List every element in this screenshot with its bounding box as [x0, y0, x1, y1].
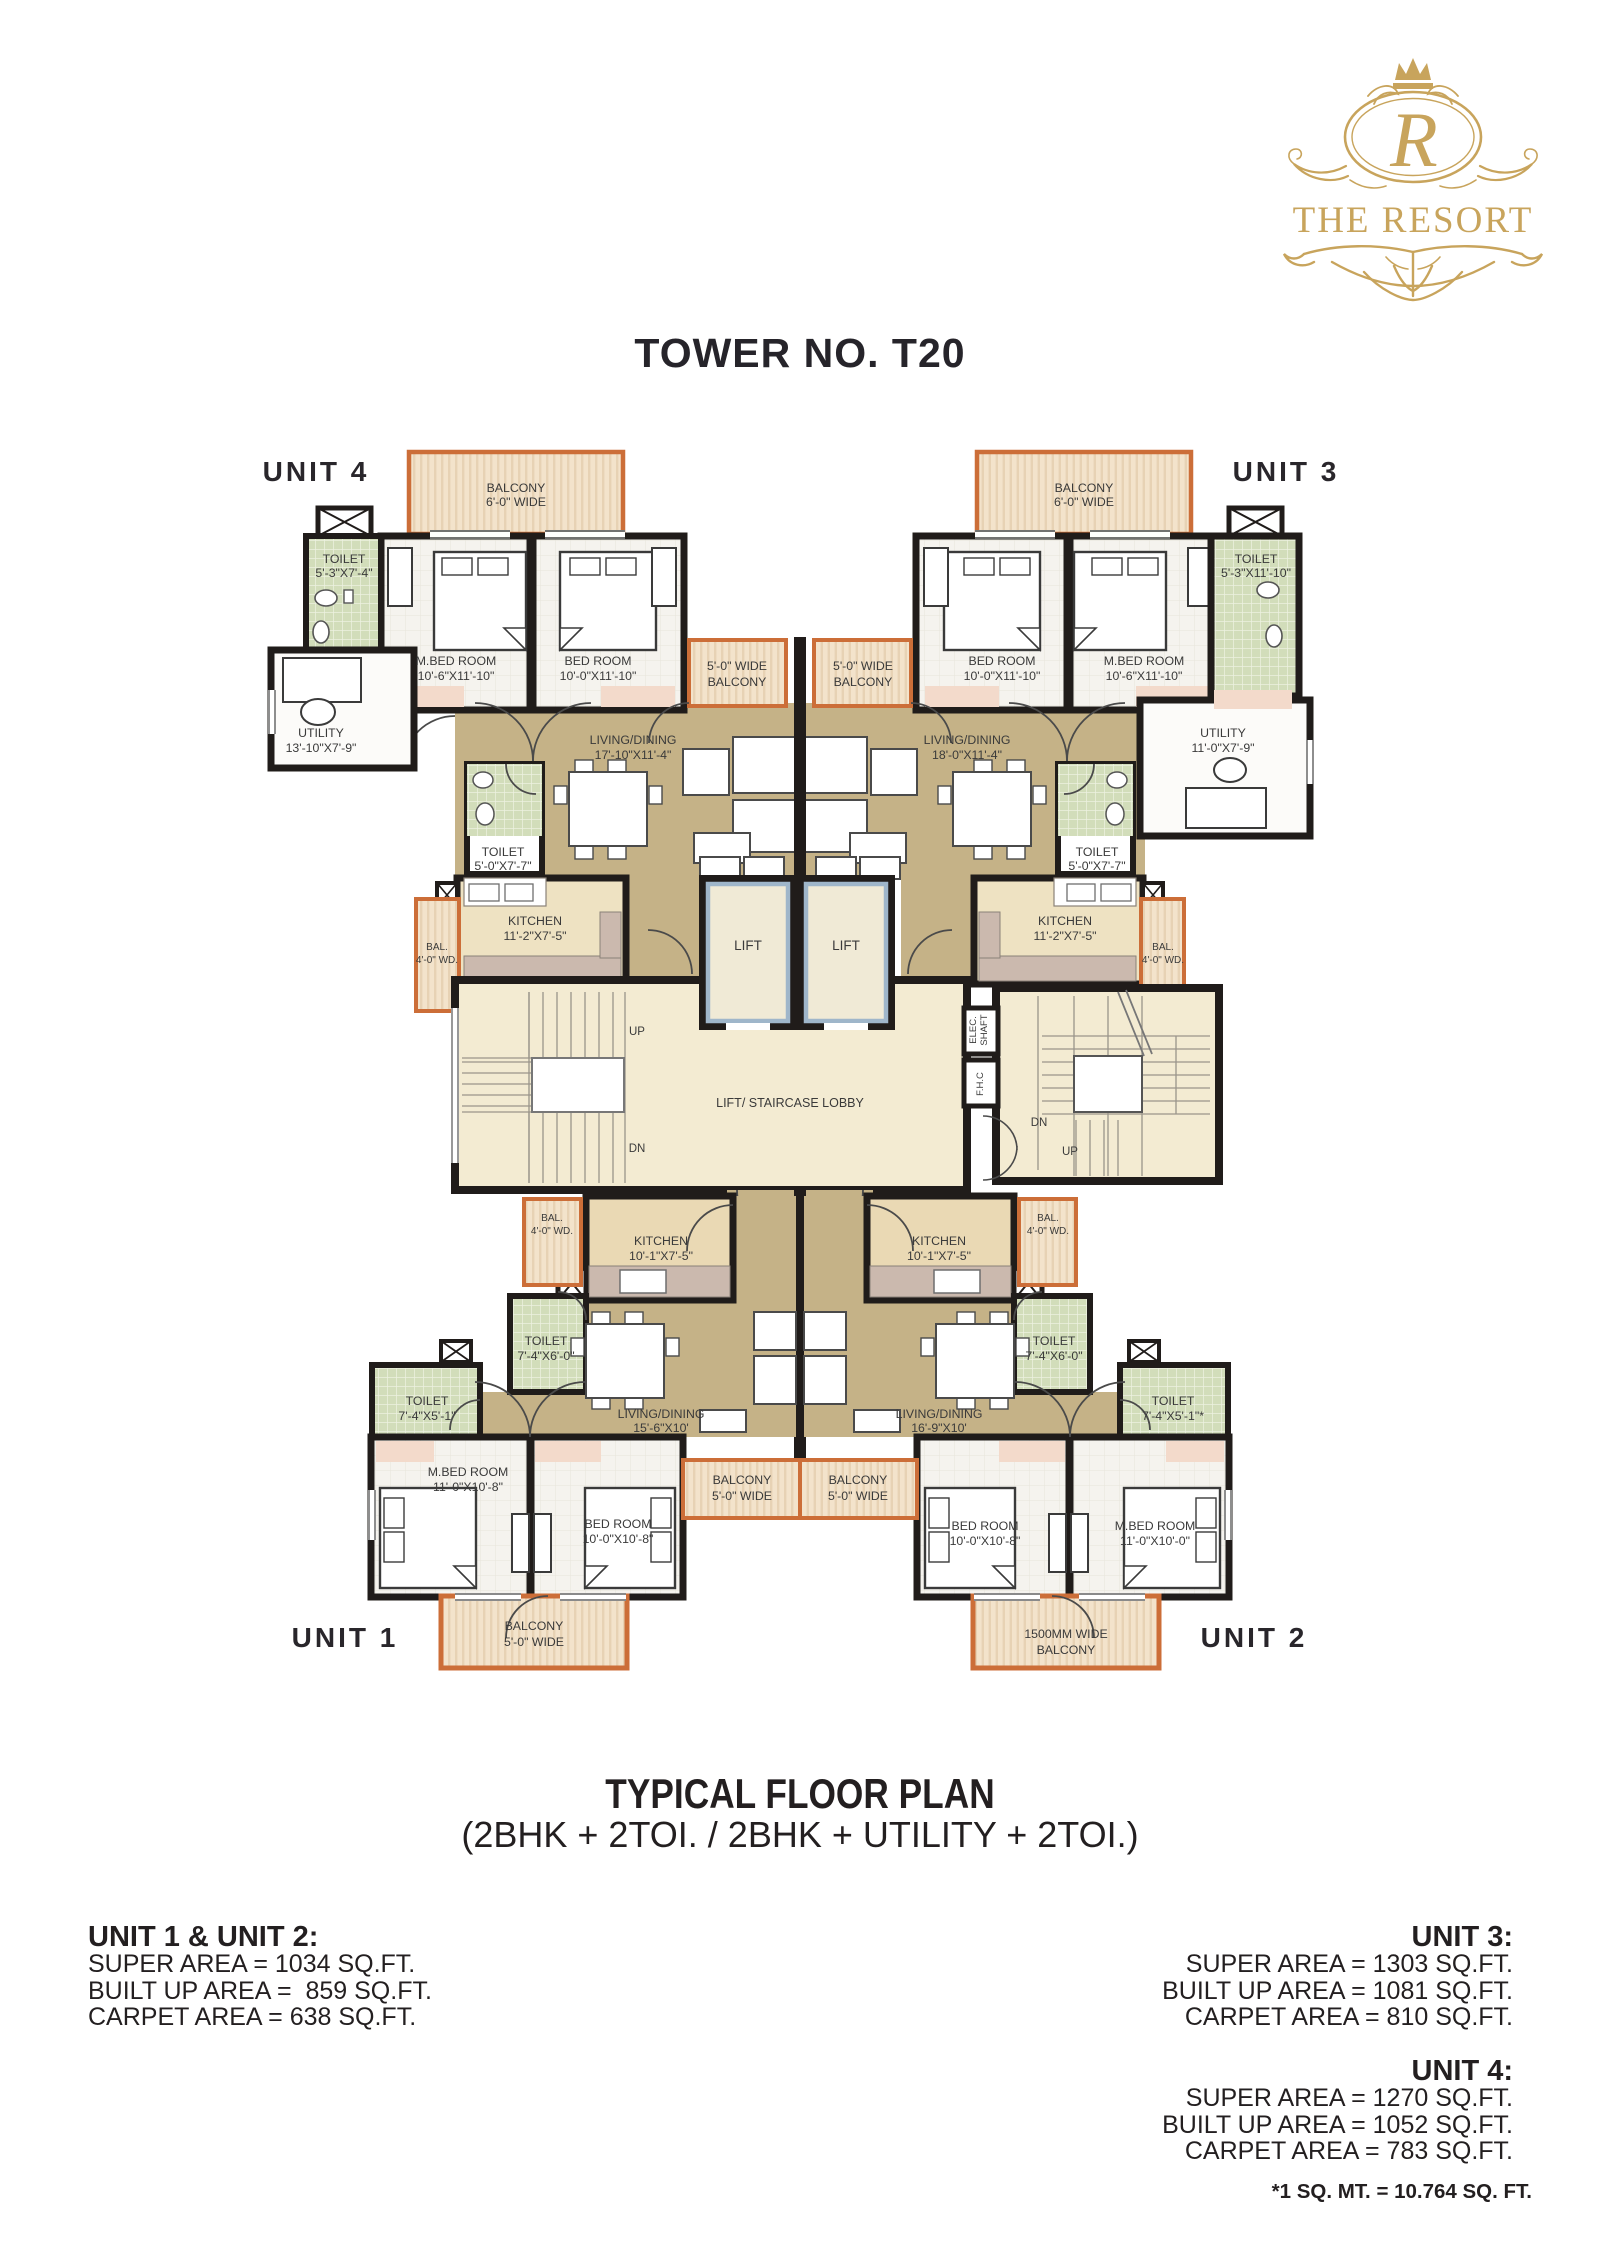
- svg-text:DN: DN: [629, 1143, 646, 1155]
- svg-text:M.BED ROOM: M.BED ROOM: [1115, 1519, 1196, 1533]
- svg-text:5'-0"X7'-7": 5'-0"X7'-7": [474, 859, 531, 873]
- svg-text:11'-2"X7'-5": 11'-2"X7'-5": [1033, 929, 1096, 943]
- svg-text:BED ROOM: BED ROOM: [969, 654, 1036, 668]
- svg-text:LIFT: LIFT: [832, 938, 860, 953]
- svg-text:TOILET: TOILET: [1033, 1334, 1076, 1348]
- svg-text:TOILET: TOILET: [482, 845, 525, 859]
- svg-text:UNIT 1: UNIT 1: [292, 1622, 399, 1653]
- svg-text:7'-4"X6'-0": 7'-4"X6'-0": [517, 1349, 574, 1363]
- svg-text:ELEC.: ELEC.: [968, 1016, 979, 1043]
- svg-text:M.BED ROOM: M.BED ROOM: [416, 654, 497, 668]
- svg-text:10'-6"X11'-10": 10'-6"X11'-10": [1106, 669, 1183, 683]
- svg-text:SHAFT: SHAFT: [979, 1014, 990, 1045]
- svg-text:11'-0"X7'-9": 11'-0"X7'-9": [1191, 741, 1254, 755]
- svg-text:BAL.: BAL.: [541, 1213, 563, 1224]
- svg-text:17'-10"X11'-4": 17'-10"X11'-4": [595, 748, 672, 762]
- svg-text:LIVING/DINING: LIVING/DINING: [590, 733, 677, 747]
- svg-text:UNIT 4: UNIT 4: [263, 456, 370, 487]
- svg-text:F.H.C: F.H.C: [975, 1072, 986, 1096]
- svg-text:6'-0" WIDE: 6'-0" WIDE: [1054, 495, 1114, 509]
- svg-text:16'-9"X10': 16'-9"X10': [911, 1421, 967, 1435]
- svg-text:TOILET: TOILET: [1235, 552, 1278, 566]
- svg-text:UP: UP: [629, 1026, 645, 1038]
- svg-text:BALCONY: BALCONY: [708, 675, 767, 689]
- svg-text:M.BED ROOM: M.BED ROOM: [1104, 654, 1185, 668]
- svg-text:7'-4"X6'-0": 7'-4"X6'-0": [1025, 1349, 1082, 1363]
- svg-text:DN: DN: [1031, 1117, 1048, 1129]
- svg-text:KITCHEN: KITCHEN: [1038, 914, 1092, 928]
- svg-text:M.BED ROOM: M.BED ROOM: [428, 1465, 509, 1479]
- svg-text:10'-1"X7'-5": 10'-1"X7'-5": [629, 1249, 693, 1263]
- svg-text:TOILET: TOILET: [323, 552, 366, 566]
- svg-text:7'-4"X5'-1": 7'-4"X5'-1": [398, 1409, 455, 1423]
- svg-text:BED ROOM: BED ROOM: [585, 1517, 652, 1531]
- svg-text:LIVING/DINING: LIVING/DINING: [896, 1407, 983, 1421]
- svg-text:5'-0" WIDE: 5'-0" WIDE: [712, 1489, 772, 1503]
- svg-text:BAL.: BAL.: [426, 942, 448, 953]
- svg-text:4'-0" WD.: 4'-0" WD.: [531, 1226, 573, 1237]
- svg-text:10'-0"X10'-8": 10'-0"X10'-8": [583, 1532, 654, 1546]
- svg-text:11'-0"X10'-8": 11'-0"X10'-8": [433, 1480, 503, 1494]
- svg-text:13'-10"X7'-9": 13'-10"X7'-9": [286, 741, 357, 755]
- svg-text:KITCHEN: KITCHEN: [912, 1234, 966, 1248]
- svg-text:LIFT/ STAIRCASE LOBBY: LIFT/ STAIRCASE LOBBY: [716, 1096, 864, 1110]
- svg-text:4'-0" WD.: 4'-0" WD.: [1142, 955, 1184, 966]
- svg-text:10'-6"X11'-10": 10'-6"X11'-10": [418, 669, 495, 683]
- svg-text:LIVING/DINING: LIVING/DINING: [924, 733, 1011, 747]
- svg-text:5'-0" WIDE: 5'-0" WIDE: [833, 659, 893, 673]
- svg-text:LIVING/DINING: LIVING/DINING: [618, 1407, 705, 1421]
- svg-text:UTILITY: UTILITY: [1200, 726, 1246, 740]
- svg-text:7'-4"X5'-1"*: 7'-4"X5'-1"*: [1142, 1409, 1204, 1423]
- svg-text:5'-0"X7'-7": 5'-0"X7'-7": [1068, 859, 1125, 873]
- svg-text:1500MM WIDE: 1500MM WIDE: [1024, 1627, 1107, 1641]
- svg-text:BALCONY: BALCONY: [834, 675, 893, 689]
- svg-text:BAL.: BAL.: [1152, 942, 1174, 953]
- svg-text:BALCONY: BALCONY: [1037, 1643, 1096, 1657]
- svg-text:BALCONY: BALCONY: [1055, 481, 1114, 495]
- svg-text:TOILET: TOILET: [1152, 1394, 1195, 1408]
- svg-text:BALCONY: BALCONY: [829, 1473, 888, 1487]
- svg-text:TOILET: TOILET: [1076, 845, 1119, 859]
- svg-text:BED ROOM: BED ROOM: [952, 1519, 1019, 1533]
- svg-text:UP: UP: [1062, 1146, 1078, 1158]
- svg-text:BALCONY: BALCONY: [487, 481, 546, 495]
- svg-text:KITCHEN: KITCHEN: [508, 914, 562, 928]
- svg-text:BALCONY: BALCONY: [713, 1473, 772, 1487]
- svg-text:5'-0" WIDE: 5'-0" WIDE: [828, 1489, 888, 1503]
- svg-text:10'-0"X10'-8": 10'-0"X10'-8": [950, 1534, 1021, 1548]
- svg-text:18'-0"X11'-4": 18'-0"X11'-4": [932, 748, 1002, 762]
- svg-text:LIFT: LIFT: [734, 938, 762, 953]
- svg-text:10'-0"X11'-10": 10'-0"X11'-10": [560, 669, 637, 683]
- svg-text:10'-1"X7'-5": 10'-1"X7'-5": [907, 1249, 971, 1263]
- svg-text:UNIT 3: UNIT 3: [1233, 456, 1340, 487]
- svg-text:BALCONY: BALCONY: [505, 1619, 564, 1633]
- svg-text:BAL.: BAL.: [1037, 1213, 1059, 1224]
- svg-text:11'-0"X10'-0": 11'-0"X10'-0": [1120, 1534, 1190, 1548]
- svg-text:5'-0" WIDE: 5'-0" WIDE: [504, 1635, 564, 1649]
- svg-text:BED ROOM: BED ROOM: [565, 654, 632, 668]
- svg-text:UTILITY: UTILITY: [298, 726, 344, 740]
- svg-text:11'-2"X7'-5": 11'-2"X7'-5": [503, 929, 566, 943]
- svg-text:10'-0"X11'-10": 10'-0"X11'-10": [964, 669, 1041, 683]
- svg-text:5'-0" WIDE: 5'-0" WIDE: [707, 659, 767, 673]
- svg-text:4'-0" WD.: 4'-0" WD.: [416, 955, 458, 966]
- svg-text:15'-6"X10': 15'-6"X10': [633, 1421, 689, 1435]
- svg-text:5'-3"X7'-4": 5'-3"X7'-4": [315, 566, 372, 580]
- svg-text:TOILET: TOILET: [525, 1334, 568, 1348]
- svg-text:5'-3"X11'-10": 5'-3"X11'-10": [1221, 566, 1291, 580]
- svg-text:UNIT 2: UNIT 2: [1201, 1622, 1308, 1653]
- svg-text:TOILET: TOILET: [406, 1394, 449, 1408]
- svg-text:6'-0" WIDE: 6'-0" WIDE: [486, 495, 546, 509]
- svg-text:4'-0" WD.: 4'-0" WD.: [1027, 1226, 1069, 1237]
- svg-text:KITCHEN: KITCHEN: [634, 1234, 688, 1248]
